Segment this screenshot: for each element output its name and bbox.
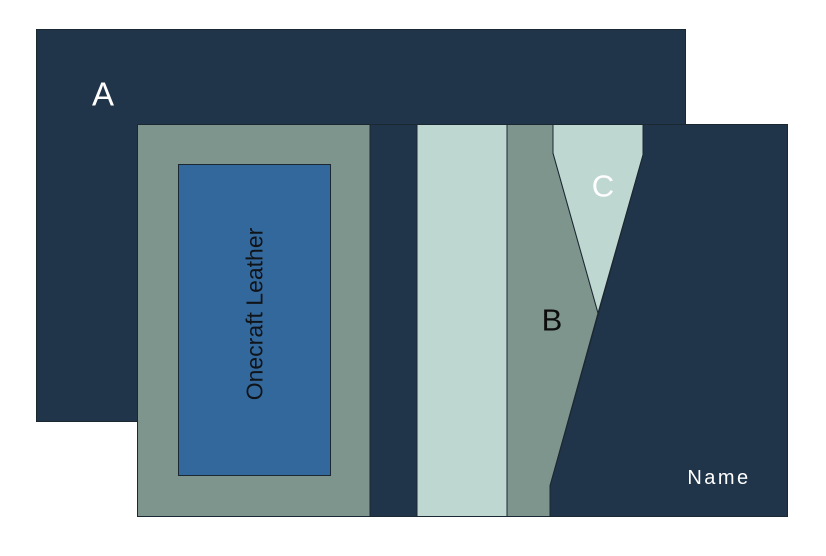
pale-strip (417, 125, 507, 517)
navy-gap-strip (370, 125, 417, 517)
wedge-c-label: C (592, 171, 614, 202)
patch-label: Onecraft Leather (244, 228, 267, 401)
strip-b-label: B (542, 305, 563, 336)
front-panel: Onecraft Leather B C Name (137, 124, 788, 517)
front-panel-shapes (137, 124, 788, 517)
diagram-canvas: A Onecraft Leather B C (0, 0, 826, 556)
back-panel-label: A (92, 78, 114, 111)
name-label: Name (687, 468, 750, 488)
